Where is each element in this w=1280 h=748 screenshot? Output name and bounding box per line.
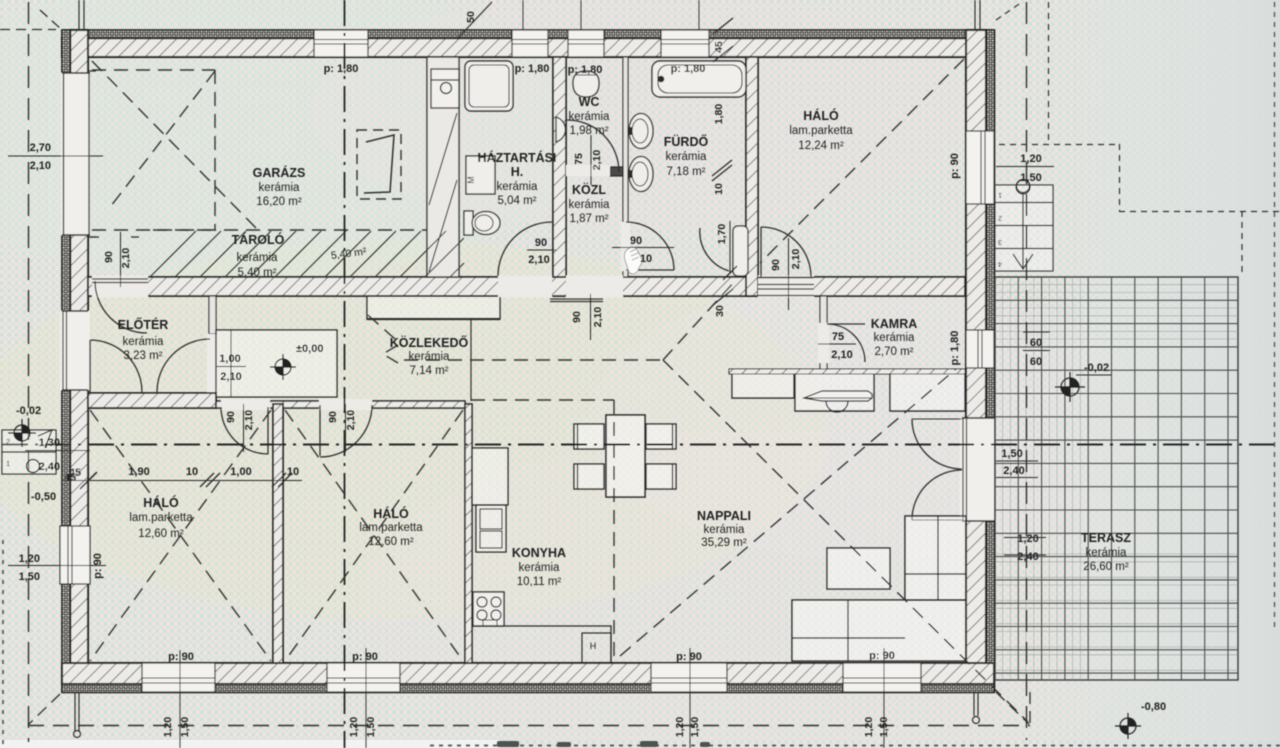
svg-text:p: 90: p: 90 xyxy=(352,651,378,663)
svg-text:10: 10 xyxy=(640,253,652,265)
svg-text:p: 1,80: p: 1,80 xyxy=(949,331,961,366)
svg-text:WC: WC xyxy=(579,95,600,109)
svg-text:p: 1,80: p: 1,80 xyxy=(568,64,603,76)
svg-text:75: 75 xyxy=(573,153,585,165)
svg-text:1,98 m²: 1,98 m² xyxy=(570,125,609,137)
svg-text:-0,50: -0,50 xyxy=(31,491,56,503)
svg-text:50: 50 xyxy=(465,11,477,23)
svg-text:TÁROLÓ: TÁROLÓ xyxy=(232,232,285,247)
svg-text:7,14 m²: 7,14 m² xyxy=(410,365,449,377)
svg-text:2,10: 2,10 xyxy=(243,410,255,431)
svg-text:1,20: 1,20 xyxy=(162,717,174,738)
svg-text:kerámia: kerámia xyxy=(874,332,916,344)
svg-text:±0,00: ±0,00 xyxy=(296,343,323,355)
svg-text:26,60 m²: 26,60 m² xyxy=(1083,561,1129,573)
svg-text:kerámia: kerámia xyxy=(259,182,301,194)
svg-text:TERASZ: TERASZ xyxy=(1081,531,1131,545)
svg-text:16,20 m²: 16,20 m² xyxy=(256,196,302,208)
svg-text:NAPPALI: NAPPALI xyxy=(697,509,751,523)
svg-text:2,70 m²: 2,70 m² xyxy=(875,346,914,358)
svg-text:2,40: 2,40 xyxy=(39,461,60,473)
svg-text:1,50: 1,50 xyxy=(878,717,890,738)
svg-text:kerámia: kerámia xyxy=(704,524,746,536)
svg-text:1,87 m²: 1,87 m² xyxy=(570,213,609,225)
svg-text:M: M xyxy=(466,176,476,184)
svg-text:kerámia: kerámia xyxy=(497,181,539,193)
svg-text:1,50: 1,50 xyxy=(689,717,701,738)
svg-text:H.: H. xyxy=(511,165,524,179)
svg-text:KÖZL: KÖZL xyxy=(572,182,606,197)
svg-text:-0,80: -0,80 xyxy=(1141,701,1166,713)
svg-text:2,10: 2,10 xyxy=(591,150,603,171)
svg-text:10: 10 xyxy=(186,466,198,478)
svg-text:kerámia: kerámia xyxy=(123,336,165,348)
svg-text:1,20: 1,20 xyxy=(19,553,40,565)
svg-text:kerámia: kerámia xyxy=(1086,547,1128,559)
svg-text:p: 1,80: p: 1,80 xyxy=(515,63,550,75)
svg-text:HÁZTARTÁSI: HÁZTARTÁSI xyxy=(478,150,557,165)
svg-text:lam.parketta: lam.parketta xyxy=(129,512,193,524)
svg-text:2,10: 2,10 xyxy=(30,160,51,172)
svg-text:4: 4 xyxy=(998,260,1002,269)
svg-text:-0,02: -0,02 xyxy=(16,405,41,417)
svg-text:kerámia: kerámia xyxy=(519,562,561,574)
svg-text:5,40 m²: 5,40 m² xyxy=(238,267,277,279)
svg-text:p: 90: p: 90 xyxy=(676,651,702,663)
svg-text:FÜRDŐ: FÜRDŐ xyxy=(664,134,709,149)
svg-text:lam.parketta: lam.parketta xyxy=(359,522,423,534)
svg-text:12,24 m²: 12,24 m² xyxy=(798,140,844,152)
svg-text:3,23 m²: 3,23 m² xyxy=(124,350,163,362)
svg-text:45: 45 xyxy=(69,467,81,479)
svg-text:2,40: 2,40 xyxy=(1017,551,1038,563)
svg-text:-0,02: -0,02 xyxy=(1084,362,1109,374)
svg-text:1,80: 1,80 xyxy=(713,104,725,125)
svg-text:1,50: 1,50 xyxy=(19,571,40,583)
svg-text:2: 2 xyxy=(6,437,10,446)
svg-text:p: 90: p: 90 xyxy=(168,651,194,663)
svg-text:1,20: 1,20 xyxy=(1017,533,1038,545)
svg-text:90: 90 xyxy=(103,251,115,263)
svg-text:2,10: 2,10 xyxy=(831,349,852,361)
svg-text:kerámia: kerámia xyxy=(666,151,708,163)
svg-text:2,10: 2,10 xyxy=(528,254,549,266)
svg-text:2: 2 xyxy=(998,214,1002,223)
svg-text:p: 1,80: p: 1,80 xyxy=(671,63,706,75)
svg-text:lam.parketta: lam.parketta xyxy=(789,125,853,137)
svg-text:KÖZLEKEDŐ: KÖZLEKEDŐ xyxy=(390,335,469,350)
svg-text:2,10: 2,10 xyxy=(345,410,357,431)
svg-text:1: 1 xyxy=(998,191,1002,200)
svg-text:1,00: 1,00 xyxy=(230,466,251,478)
svg-text:1,20: 1,20 xyxy=(863,717,875,738)
svg-text:12,60 m²: 12,60 m² xyxy=(138,528,184,540)
svg-text:30: 30 xyxy=(714,305,726,317)
svg-text:2,10: 2,10 xyxy=(790,249,802,270)
svg-text:2,10: 2,10 xyxy=(592,307,604,328)
svg-text:H: H xyxy=(590,641,597,651)
svg-text:HÁLÓ: HÁLÓ xyxy=(803,108,839,123)
svg-text:60: 60 xyxy=(1030,356,1042,368)
svg-text:90: 90 xyxy=(770,259,782,271)
svg-text:90: 90 xyxy=(630,235,642,247)
svg-text:ELŐTÉR: ELŐTÉR xyxy=(118,317,169,332)
svg-text:HÁLÓ: HÁLÓ xyxy=(143,495,179,510)
svg-text:7,18 m²: 7,18 m² xyxy=(667,166,706,178)
svg-text:p: 1,80: p: 1,80 xyxy=(324,63,359,75)
svg-text:90: 90 xyxy=(535,237,547,249)
svg-text:1,00: 1,00 xyxy=(219,353,240,365)
svg-text:3: 3 xyxy=(998,238,1002,247)
svg-text:1,50: 1,50 xyxy=(1020,172,1041,184)
svg-text:p: 90: p: 90 xyxy=(869,650,895,662)
svg-text:2,70: 2,70 xyxy=(30,142,51,154)
svg-text:1,50: 1,50 xyxy=(1001,448,1022,460)
svg-text:p: 90: p: 90 xyxy=(949,153,961,179)
svg-text:1,20: 1,20 xyxy=(348,717,360,738)
svg-text:90: 90 xyxy=(571,311,583,323)
svg-text:1,30: 1,30 xyxy=(39,437,60,449)
svg-text:2,40: 2,40 xyxy=(1003,465,1024,477)
svg-text:10: 10 xyxy=(713,183,725,195)
svg-text:KAMRA: KAMRA xyxy=(871,317,918,331)
svg-text:1,20: 1,20 xyxy=(1020,153,1041,165)
svg-text:kerámia: kerámia xyxy=(569,199,611,211)
svg-text:1,20: 1,20 xyxy=(674,717,686,738)
svg-text:GARÁZS: GARÁZS xyxy=(253,165,306,180)
svg-text:35,29 m²: 35,29 m² xyxy=(701,537,747,549)
svg-text:2,10: 2,10 xyxy=(120,248,132,269)
svg-text:90: 90 xyxy=(225,411,237,423)
svg-text:kerámia: kerámia xyxy=(569,111,611,123)
svg-text:1,50: 1,50 xyxy=(179,717,191,738)
svg-text:60: 60 xyxy=(1030,337,1042,349)
svg-text:75: 75 xyxy=(832,331,844,343)
svg-text:45: 45 xyxy=(713,41,725,53)
svg-text:1,90: 1,90 xyxy=(128,466,149,478)
svg-text:1,70: 1,70 xyxy=(716,224,728,245)
svg-text:5,04 m²: 5,04 m² xyxy=(498,195,537,207)
svg-text:kerámia: kerámia xyxy=(409,351,451,363)
svg-text:10,11 m²: 10,11 m² xyxy=(517,576,562,588)
svg-text:kerámia: kerámia xyxy=(237,252,279,264)
svg-text:1,50: 1,50 xyxy=(365,717,377,738)
svg-text:90: 90 xyxy=(327,411,339,423)
svg-text:HÁLÓ: HÁLÓ xyxy=(373,506,409,521)
svg-text:1: 1 xyxy=(6,459,10,468)
svg-text:12,60 m²: 12,60 m² xyxy=(368,536,414,548)
svg-text:KONYHA: KONYHA xyxy=(512,546,566,560)
